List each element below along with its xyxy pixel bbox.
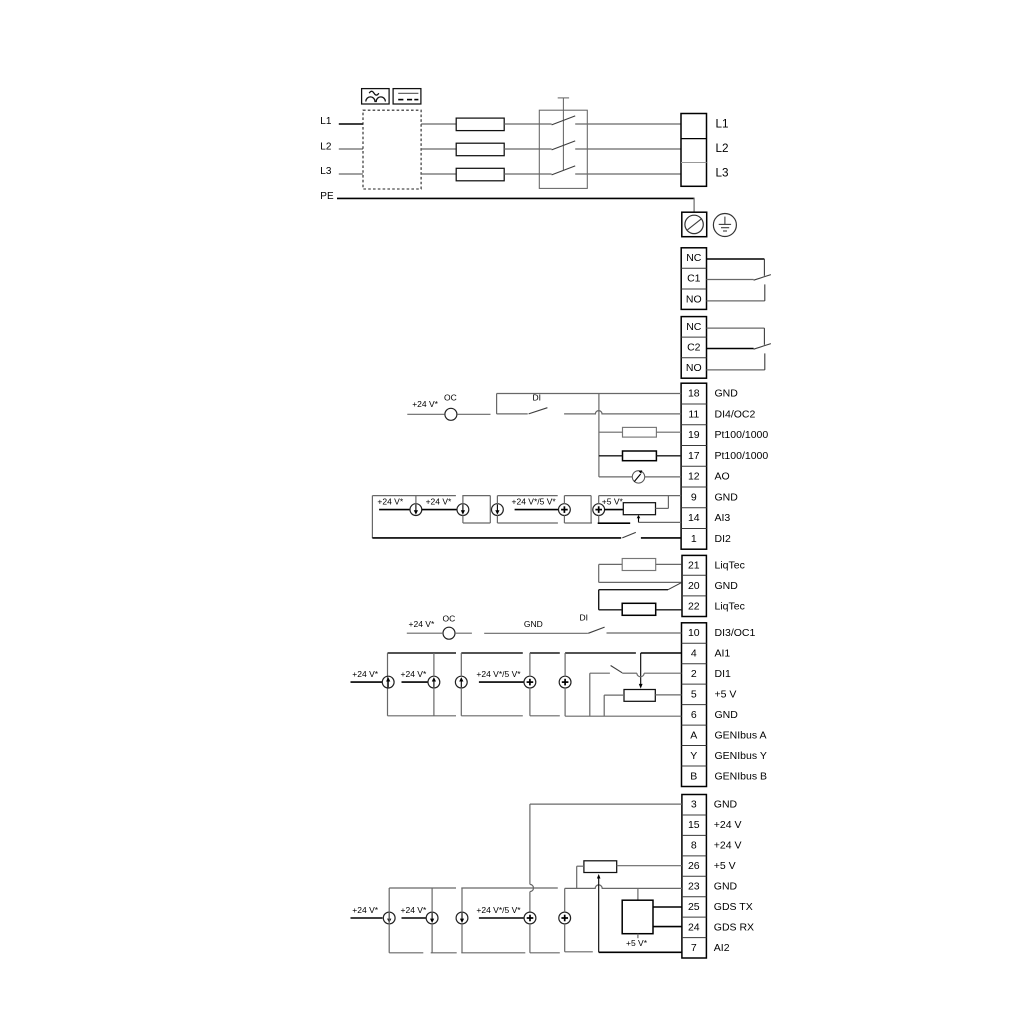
svg-text:DI1: DI1: [715, 668, 732, 680]
svg-text:GND: GND: [714, 799, 738, 811]
svg-text:25: 25: [688, 901, 700, 913]
svg-text:Pt100/1000: Pt100/1000: [715, 450, 769, 462]
svg-text:DI4/OC2: DI4/OC2: [715, 408, 756, 420]
svg-text:15: 15: [688, 819, 700, 831]
svg-text:LiqTec: LiqTec: [715, 600, 745, 612]
svg-text:19: 19: [688, 429, 700, 441]
svg-text:5: 5: [691, 688, 697, 700]
svg-text:GENIbus A: GENIbus A: [715, 729, 767, 741]
svg-text:9: 9: [691, 491, 697, 503]
svg-text:L2: L2: [716, 142, 729, 155]
svg-text:DI2: DI2: [715, 533, 732, 545]
svg-text:AI1: AI1: [715, 647, 731, 659]
svg-text:NC: NC: [686, 321, 702, 333]
svg-text:GND: GND: [524, 619, 543, 629]
svg-text:DI: DI: [533, 393, 542, 403]
svg-text:DI3/OC1: DI3/OC1: [715, 627, 756, 639]
svg-text:20: 20: [688, 580, 700, 592]
svg-text:+5 V: +5 V: [715, 688, 737, 700]
svg-text:3: 3: [691, 799, 697, 811]
svg-text:GND: GND: [715, 491, 739, 503]
svg-text:21: 21: [688, 560, 700, 572]
svg-text:OC: OC: [444, 393, 457, 403]
svg-text:+24 V*: +24 V*: [401, 905, 427, 915]
svg-text:24: 24: [688, 921, 700, 933]
svg-text:6: 6: [691, 709, 697, 721]
svg-text:+24 V*: +24 V*: [377, 497, 403, 507]
svg-text:23: 23: [688, 880, 700, 892]
svg-text:11: 11: [688, 408, 699, 420]
svg-text:L3: L3: [716, 167, 729, 180]
svg-text:+5 V*: +5 V*: [602, 497, 624, 507]
svg-text:PE: PE: [320, 191, 334, 202]
svg-text:LiqTec: LiqTec: [715, 560, 745, 572]
svg-text:GND: GND: [715, 580, 739, 592]
svg-text:NC: NC: [686, 252, 702, 264]
svg-text:+24 V*: +24 V*: [352, 669, 378, 679]
svg-text:+24 V*/5 V*: +24 V*/5 V*: [476, 905, 521, 915]
svg-text:14: 14: [688, 512, 700, 524]
svg-text:+24 V*: +24 V*: [409, 619, 435, 629]
svg-text:22: 22: [688, 600, 700, 612]
svg-text:NO: NO: [686, 362, 702, 374]
svg-text:L1: L1: [716, 117, 729, 130]
svg-text:C1: C1: [687, 273, 701, 285]
svg-text:+24 V: +24 V: [714, 819, 742, 831]
svg-text:10: 10: [688, 627, 700, 639]
svg-text:GND: GND: [715, 388, 739, 400]
svg-text:GDS RX: GDS RX: [714, 921, 754, 933]
svg-text:+24 V*: +24 V*: [401, 669, 427, 679]
svg-text:AO: AO: [715, 471, 730, 483]
svg-text:AI2: AI2: [714, 942, 730, 954]
svg-text:GENIbus B: GENIbus B: [715, 770, 768, 782]
svg-text:+24 V*: +24 V*: [352, 905, 378, 915]
svg-text:17: 17: [688, 450, 700, 462]
svg-text:7: 7: [691, 942, 697, 954]
svg-text:2: 2: [691, 668, 697, 680]
svg-text:OC: OC: [443, 614, 456, 624]
svg-text:GND: GND: [715, 709, 739, 721]
svg-text:A: A: [690, 729, 697, 741]
svg-text:+24 V*/5 V*: +24 V*/5 V*: [476, 669, 521, 679]
svg-text:+24 V*: +24 V*: [426, 497, 452, 507]
svg-text:GENIbus Y: GENIbus Y: [715, 750, 767, 762]
svg-text:GDS TX: GDS TX: [714, 901, 753, 913]
svg-text:Pt100/1000: Pt100/1000: [715, 429, 769, 441]
svg-text:NO: NO: [686, 293, 702, 305]
svg-text:+24 V*/5 V*: +24 V*/5 V*: [512, 497, 557, 507]
svg-text:C2: C2: [687, 342, 701, 354]
svg-text:26: 26: [688, 860, 700, 872]
svg-text:18: 18: [688, 388, 700, 400]
svg-text:12: 12: [688, 471, 700, 483]
svg-text:AI3: AI3: [715, 512, 731, 524]
svg-text:DI: DI: [580, 613, 589, 623]
svg-text:GND: GND: [714, 880, 738, 892]
svg-text:L2: L2: [320, 142, 332, 153]
svg-text:L1: L1: [320, 116, 332, 127]
svg-text:B: B: [690, 770, 697, 782]
svg-text:+24 V*: +24 V*: [412, 399, 438, 409]
svg-text:1: 1: [691, 533, 697, 545]
svg-text:Y: Y: [690, 750, 697, 762]
svg-text:+24 V: +24 V: [714, 840, 742, 852]
svg-text:+5 V: +5 V: [714, 860, 736, 872]
svg-text:+5 V*: +5 V*: [626, 938, 648, 948]
svg-text:L3: L3: [320, 166, 332, 177]
svg-text:8: 8: [691, 840, 697, 852]
svg-text:4: 4: [691, 647, 697, 659]
